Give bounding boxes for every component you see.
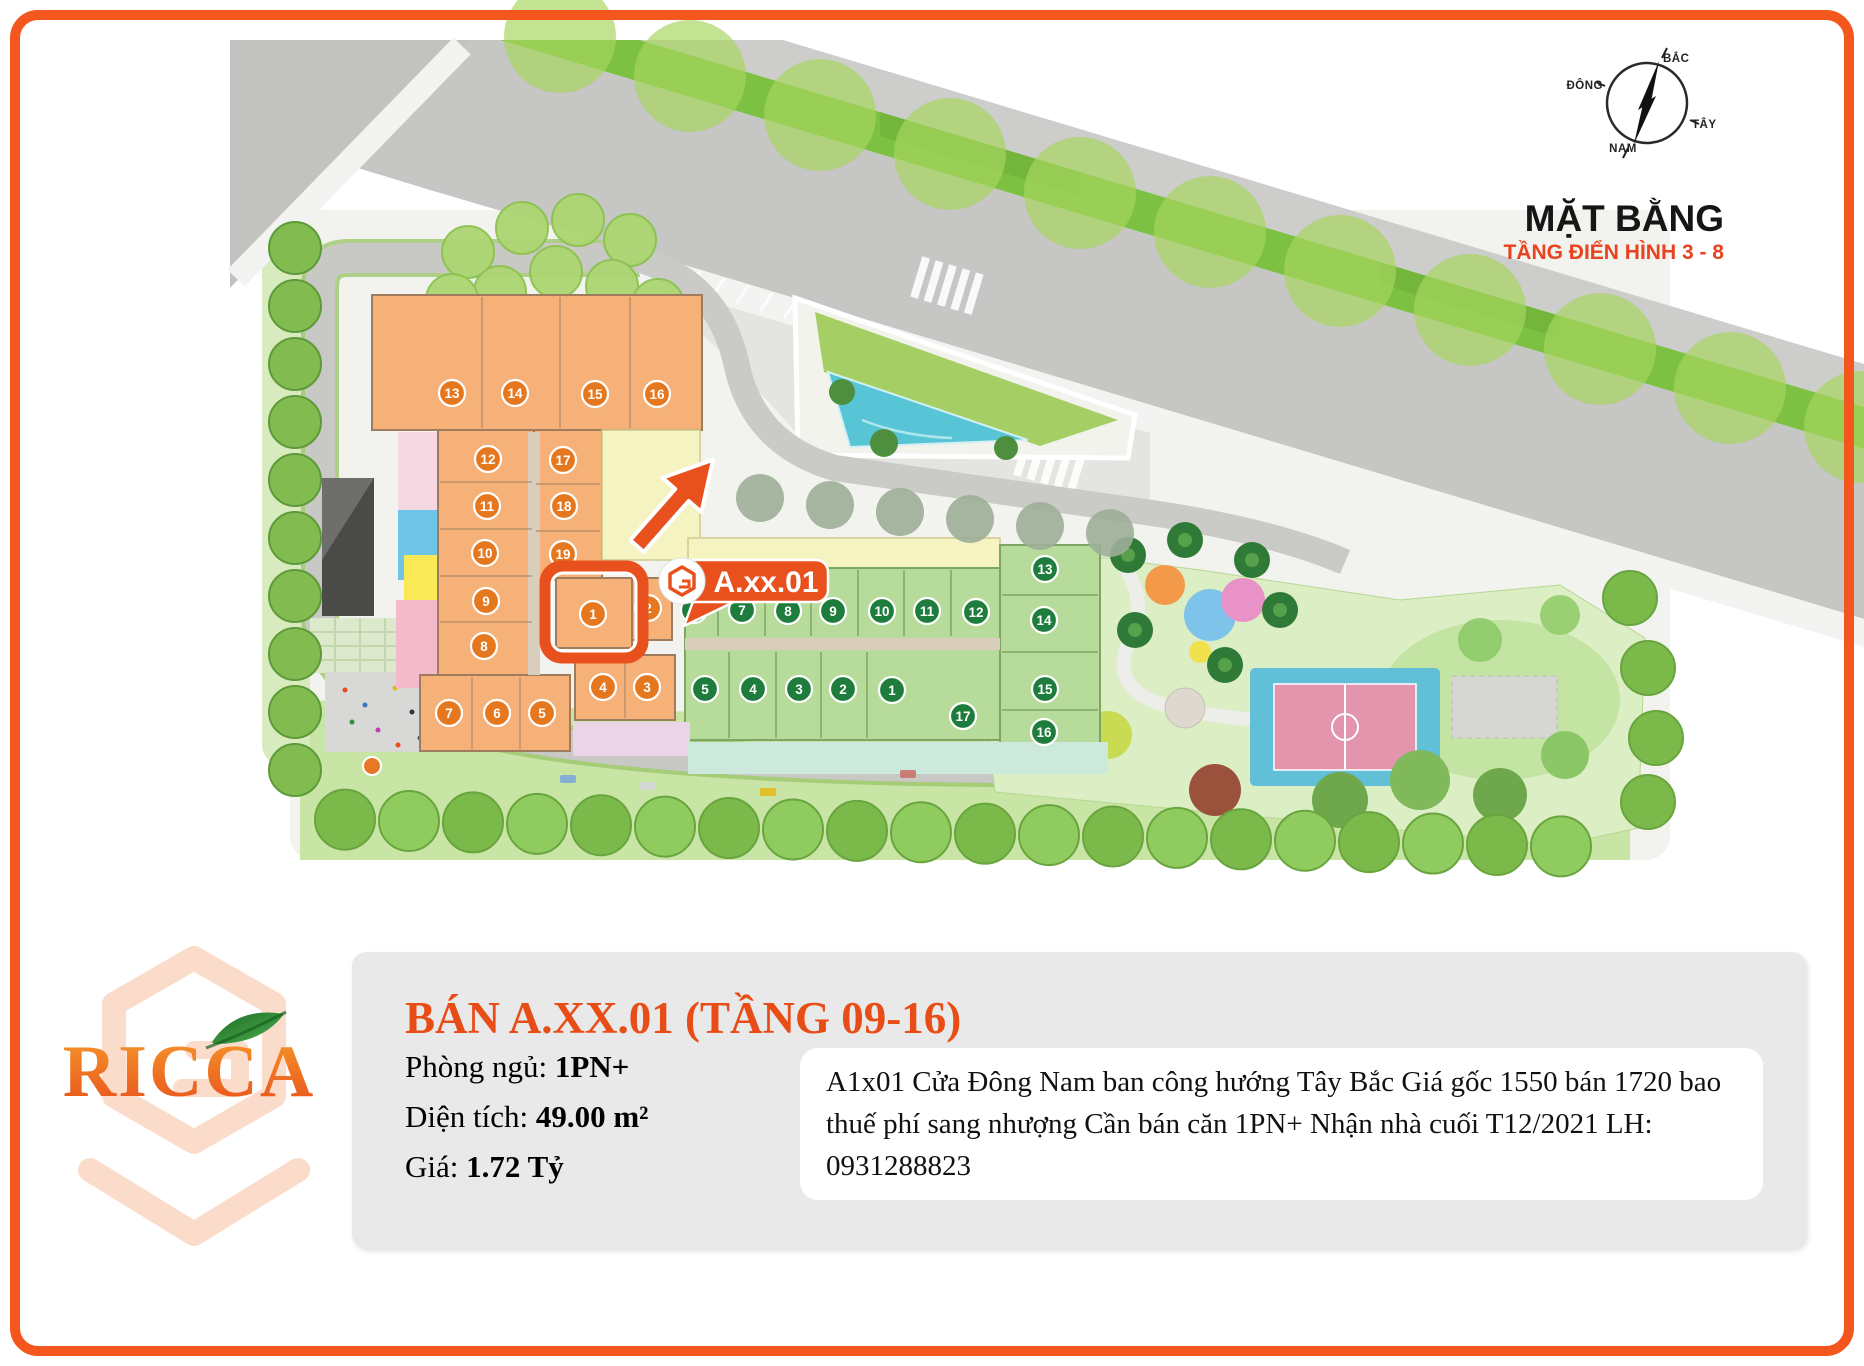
red-tree [1189, 764, 1241, 816]
svg-text:14: 14 [1036, 613, 1052, 628]
unit-marker-10: 10 [472, 540, 498, 566]
unit-marker-17: 17 [950, 703, 976, 729]
unit-marker-10: 10 [869, 598, 895, 624]
svg-text:13: 13 [1037, 562, 1053, 577]
svg-text:11: 11 [920, 604, 935, 619]
unit-marker-12: 12 [963, 599, 989, 625]
detail-row-area: Diện tích: 49.00 m² [405, 1092, 648, 1142]
unit-marker-12: 12 [475, 446, 501, 472]
pink-strip [573, 722, 690, 756]
detail-value: 1PN+ [555, 1049, 630, 1084]
compass-east-label: ĐÔNG [1567, 79, 1604, 92]
unit-marker-15: 15 [1032, 676, 1058, 702]
svg-text:6: 6 [493, 706, 501, 721]
teal-strip [688, 742, 1108, 774]
unit-marker-4: 4 [740, 676, 766, 702]
svg-text:1: 1 [888, 683, 896, 698]
svg-text:17: 17 [955, 709, 970, 724]
unit-marker-11: 11 [474, 493, 500, 519]
unit-marker-5: 5 [529, 700, 555, 726]
svg-text:7: 7 [445, 706, 453, 721]
plan-title: MẶT BẰNG [1525, 198, 1724, 239]
unit-marker-14: 14 [1031, 607, 1057, 633]
svg-text:12: 12 [968, 605, 983, 620]
compass-needle [1634, 96, 1656, 144]
unit-marker-14: 14 [502, 380, 528, 406]
unit-marker-4: 4 [590, 674, 616, 700]
compass-north-label: BẮC [1663, 52, 1689, 65]
svg-text:9: 9 [829, 604, 837, 619]
svg-text:7: 7 [738, 603, 746, 618]
brand-logo-text: RICCA [63, 1031, 316, 1113]
compass-west-label: TÂY [1692, 118, 1717, 131]
unit-marker-17: 17 [550, 447, 576, 473]
detail-value: 49.00 m² [536, 1099, 649, 1134]
corridor [685, 638, 1000, 650]
svg-text:3: 3 [643, 680, 651, 695]
svg-text:4: 4 [749, 682, 757, 697]
unit-marker-13: 13 [439, 380, 465, 406]
unit-marker-9: 9 [473, 588, 499, 614]
svg-text:8: 8 [480, 639, 488, 654]
listing-panel: BÁN A.XX.01 (TẦNG 09-16) Phòng ngủ: 1PN+… [352, 952, 1806, 1248]
unit-marker-15: 15 [582, 381, 608, 407]
unit-marker-5: 5 [692, 676, 718, 702]
svg-text:16: 16 [649, 387, 665, 402]
listing-title: BÁN A.XX.01 (TẦNG 09-16) [405, 992, 961, 1044]
svg-text:16: 16 [1036, 725, 1052, 740]
roundabout-dot [363, 757, 381, 775]
compass-rose: BẮC ĐÔNG TÂY NAM [1567, 48, 1717, 158]
unit-marker-11: 11 [914, 598, 940, 624]
svg-text:1: 1 [589, 607, 597, 622]
detail-label: Phòng ngủ: [405, 1049, 555, 1084]
svg-text:12: 12 [480, 452, 495, 467]
svg-text:17: 17 [555, 453, 570, 468]
unit-marker-1: 1 [879, 677, 905, 703]
detail-row-price: Giá: 1.72 Tỷ [405, 1142, 648, 1192]
unit-marker-13: 13 [1032, 556, 1058, 582]
unit-marker-8: 8 [471, 633, 497, 659]
unit-marker-6: 6 [484, 700, 510, 726]
svg-text:15: 15 [587, 387, 603, 402]
svg-text:13: 13 [444, 386, 460, 401]
svg-text:9: 9 [482, 594, 490, 609]
svg-text:4: 4 [599, 680, 607, 695]
unit-marker-1: 1 [580, 601, 606, 627]
unit-marker-16: 16 [1031, 719, 1057, 745]
plaza [1452, 676, 1557, 738]
svg-text:14: 14 [507, 386, 523, 401]
promo-image: 13141516121711181019987654321 6789101112… [0, 0, 1864, 1366]
svg-text:10: 10 [477, 546, 492, 561]
svg-text:18: 18 [556, 499, 572, 514]
site-plan: 13141516121711181019987654321 6789101112… [0, 0, 1864, 910]
svg-text:5: 5 [701, 682, 709, 697]
svg-text:2: 2 [839, 682, 847, 697]
detail-value: 1.72 Tỷ [466, 1149, 564, 1184]
unit-marker-7: 7 [436, 700, 462, 726]
svg-text:15: 15 [1037, 682, 1053, 697]
svg-text:5: 5 [538, 706, 546, 721]
unit-marker-9: 9 [820, 598, 846, 624]
unit-marker-18: 18 [551, 493, 577, 519]
unit-marker-16: 16 [644, 381, 670, 407]
svg-text:3: 3 [795, 682, 803, 697]
unit-marker-3: 3 [634, 674, 660, 700]
detail-label: Diện tích: [405, 1099, 536, 1134]
svg-text:11: 11 [480, 499, 495, 514]
unit-marker-2: 2 [830, 676, 856, 702]
detail-row-bedrooms: Phòng ngủ: 1PN+ [405, 1042, 648, 1092]
brand-logo: RICCA [44, 938, 336, 1270]
checker-plaza [310, 618, 410, 673]
svg-text:19: 19 [555, 547, 570, 562]
corridor [528, 432, 540, 675]
plan-subtitle: TẦNG ĐIỂN HÌNH 3 - 8 [1503, 241, 1724, 264]
unit-label-text: A.xx.01 [713, 566, 818, 599]
detail-label: Giá: [405, 1149, 466, 1184]
listing-description: A1x01 Cửa Đông Nam ban công hướng Tây Bắ… [800, 1048, 1763, 1200]
compass-south-label: NAM [1609, 143, 1637, 155]
listing-details: Phòng ngủ: 1PN+ Diện tích: 49.00 m² Giá:… [405, 1042, 648, 1192]
amenity-strip [396, 432, 444, 688]
unit-marker-3: 3 [786, 676, 812, 702]
svg-text:10: 10 [874, 604, 889, 619]
pebble-circle [1165, 688, 1205, 728]
svg-text:8: 8 [784, 604, 792, 619]
